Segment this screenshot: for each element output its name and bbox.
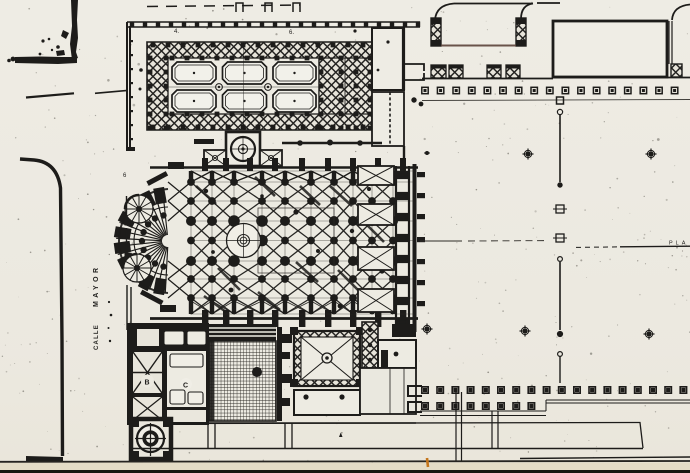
svg-text:B: B (145, 380, 150, 387)
svg-text:C: C (183, 383, 188, 390)
svg-text:MAYOR: MAYOR (93, 265, 100, 307)
svg-text:6.: 6. (289, 30, 294, 36)
svg-text:CALLE: CALLE (94, 324, 100, 350)
svg-text:4.: 4. (174, 29, 179, 35)
